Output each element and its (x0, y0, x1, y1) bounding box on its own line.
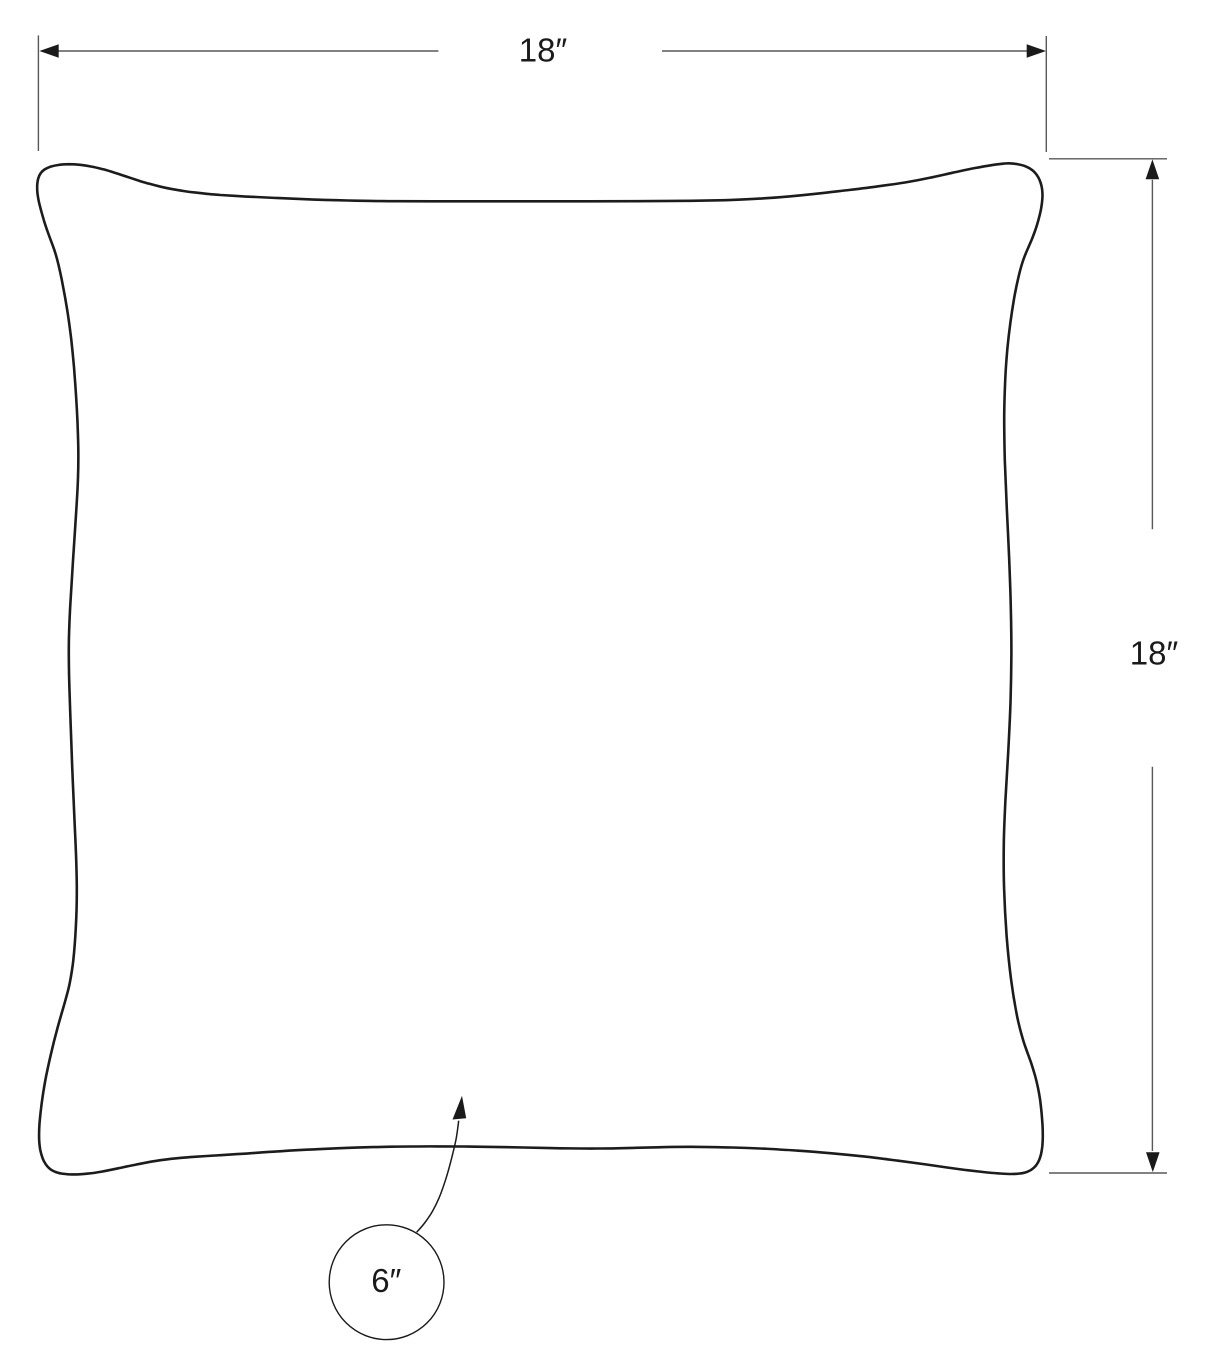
svg-text:6″: 6″ (371, 1262, 401, 1299)
svg-text:18″: 18″ (519, 32, 568, 69)
svg-text:18″: 18″ (1130, 635, 1179, 672)
